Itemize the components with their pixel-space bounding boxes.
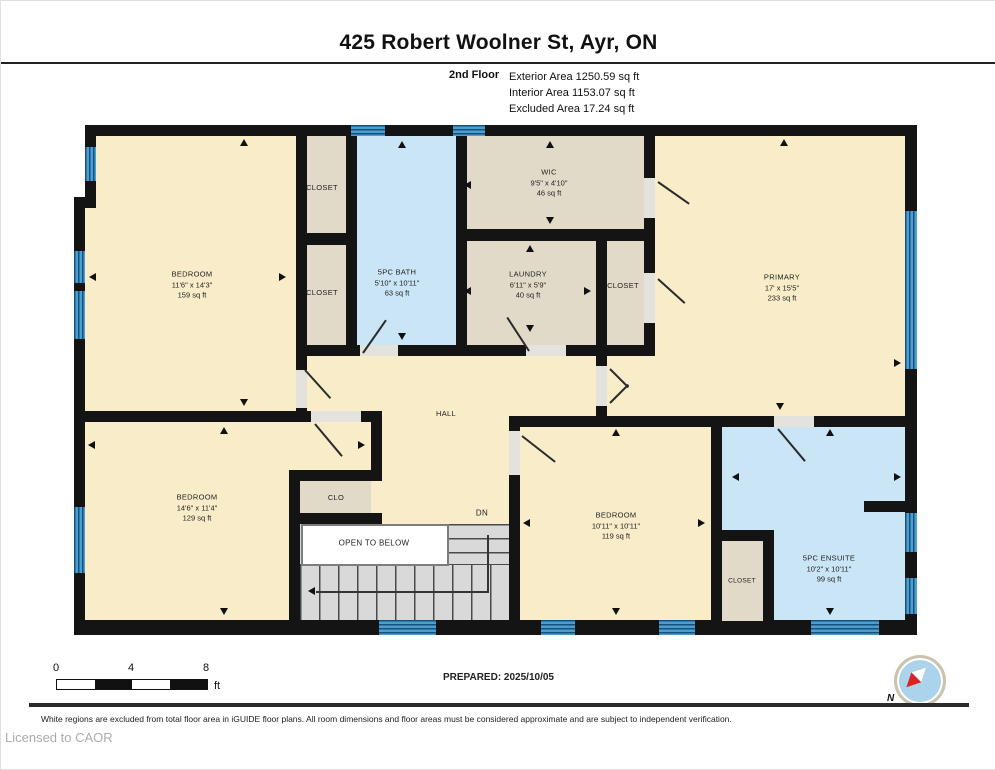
door-opening [509, 431, 520, 475]
room-label-bedroom-bm: BEDROOM 10'11" x 10'11" 119 sq ft [592, 510, 640, 542]
window-marker [905, 513, 917, 552]
direction-arrow-icon [240, 399, 248, 406]
wall-segment [289, 470, 300, 634]
room-label-clo: CLO [328, 493, 344, 504]
stairs-dn-label: DN [476, 507, 488, 518]
excluded-area: Excluded Area 17.24 sq ft [509, 101, 639, 117]
stairs-upper-run [449, 524, 511, 564]
room-label-closet-d: CLOSET [728, 576, 756, 585]
room-label-wic: WIC 9'5" x 4'10" 46 sq ft [531, 167, 568, 199]
direction-arrow-icon [546, 141, 554, 148]
page-title: 425 Robert Woolner St, Ayr, ON [1, 31, 995, 55]
wall-segment [509, 475, 520, 634]
direction-arrow-icon [894, 359, 901, 367]
direction-arrow-icon [240, 139, 248, 146]
room-label-bedroom-bl: BEDROOM 14'6" x 11'4" 129 sq ft [177, 492, 218, 524]
floor-plan: BEDROOM 11'6" x 14'3" 159 sq ft CLOSET C… [74, 123, 918, 635]
direction-arrow-icon [584, 287, 591, 295]
room-label-ensuite: 5PC ENSUITE 10'2" x 10'11" 99 sq ft [803, 553, 855, 585]
wall-segment [644, 125, 655, 178]
direction-arrow-icon [526, 325, 534, 332]
window-marker [74, 507, 85, 573]
direction-arrow-icon [698, 519, 705, 527]
wall-segment [289, 470, 382, 481]
direction-arrow-icon [279, 273, 286, 281]
room-label-laundry: LAUNDRY 6'11" x 5'9" 40 sq ft [509, 269, 547, 301]
wall-segment [814, 416, 916, 427]
direction-arrow-icon [612, 608, 620, 615]
direction-arrow-icon [732, 473, 739, 481]
room-label-closet-b: CLOSET [306, 288, 338, 299]
wall-segment [763, 530, 774, 634]
direction-arrow-icon [398, 333, 406, 340]
wall-segment [289, 513, 382, 524]
window-marker [74, 251, 85, 283]
disclaimer-text: White regions are excluded from total fl… [41, 714, 961, 724]
direction-arrow-icon [523, 519, 530, 527]
door-opening [644, 273, 655, 323]
direction-arrow-icon [526, 245, 534, 252]
direction-arrow-icon [89, 273, 96, 281]
direction-arrow-icon [220, 608, 228, 615]
wall-segment [905, 125, 917, 635]
direction-arrow-icon [464, 181, 471, 189]
direction-arrow-icon [612, 429, 620, 436]
window-marker [453, 125, 485, 136]
door-opening [526, 345, 566, 356]
door-opening [596, 366, 607, 406]
wall-segment [296, 345, 360, 356]
wall-segment [596, 229, 607, 356]
direction-arrow-icon [546, 217, 554, 224]
floor-plan-page: 425 Robert Woolner St, Ayr, ON 2nd Floor… [0, 0, 995, 770]
direction-arrow-icon [894, 473, 901, 481]
floor-label: 2nd Floor [449, 69, 499, 81]
interior-area: Interior Area 1153.07 sq ft [509, 85, 639, 101]
area-summary: Exterior Area 1250.59 sq ft Interior Are… [509, 69, 639, 117]
window-marker [905, 578, 917, 614]
stairs-lower-run [300, 564, 511, 622]
window-marker [541, 620, 575, 635]
window-marker [74, 291, 85, 339]
room-label-closet-c: CLOSET [607, 281, 639, 292]
wall-segment [74, 197, 96, 208]
direction-arrow-icon [776, 403, 784, 410]
wall-segment [456, 229, 655, 241]
door-opening [644, 178, 655, 218]
footer-divider [29, 703, 969, 707]
direction-arrow-icon [358, 441, 365, 449]
direction-arrow-icon [780, 139, 788, 146]
wall-segment [711, 427, 722, 541]
window-marker [351, 125, 385, 136]
window-marker [379, 620, 436, 635]
compass-icon [894, 655, 946, 707]
window-marker [905, 211, 917, 369]
door-opening [774, 416, 814, 427]
direction-arrow-icon [88, 441, 95, 449]
exterior-area: Exterior Area 1250.59 sq ft [509, 69, 639, 85]
prepared-date: PREPARED: 2025/10/05 [1, 672, 995, 683]
wall-segment [398, 345, 526, 356]
wall-segment [91, 125, 917, 136]
wall-segment [566, 345, 655, 356]
wall-segment [644, 218, 655, 273]
stair-path-line [487, 535, 489, 593]
wall-segment [864, 501, 916, 512]
room-fill-bath [346, 125, 467, 356]
stair-direction-arrow-icon [308, 587, 315, 595]
wall-segment [596, 356, 607, 366]
wall-segment [509, 416, 774, 427]
room-label-bath: 5PC BATH 5'10" x 10'11" 63 sq ft [375, 267, 420, 299]
wall-segment [74, 620, 917, 635]
wall-segment [711, 530, 722, 634]
direction-arrow-icon [398, 141, 406, 148]
stair-path-line [316, 591, 489, 593]
wall-segment [509, 416, 520, 431]
room-fill-hall-lower [371, 416, 520, 531]
direction-arrow-icon [826, 608, 834, 615]
direction-arrow-icon [220, 427, 228, 434]
door-opening [296, 370, 307, 408]
room-label-primary: PRIMARY 17' x 15'5" 233 sq ft [764, 272, 800, 304]
window-marker [811, 620, 879, 635]
room-label-bedroom-tl: BEDROOM 11'6" x 14'3" 159 sq ft [172, 269, 213, 301]
window-marker [659, 620, 695, 635]
wall-segment [85, 411, 307, 422]
wall-segment [346, 125, 357, 356]
wall-segment [596, 406, 607, 416]
direction-arrow-icon [826, 429, 834, 436]
door-opening [311, 411, 361, 422]
compass-needle-icon [903, 664, 931, 692]
room-label-hall: HALL [436, 409, 456, 420]
direction-arrow-icon [464, 287, 471, 295]
license-text: Licensed to CAOR [5, 730, 113, 745]
wall-segment [371, 416, 382, 473]
title-divider [1, 62, 995, 64]
window-marker [85, 147, 96, 181]
wall-segment [296, 125, 307, 370]
room-label-closet-a: CLOSET [306, 183, 338, 194]
open-to-below-label: OPEN TO BELOW [339, 537, 410, 548]
